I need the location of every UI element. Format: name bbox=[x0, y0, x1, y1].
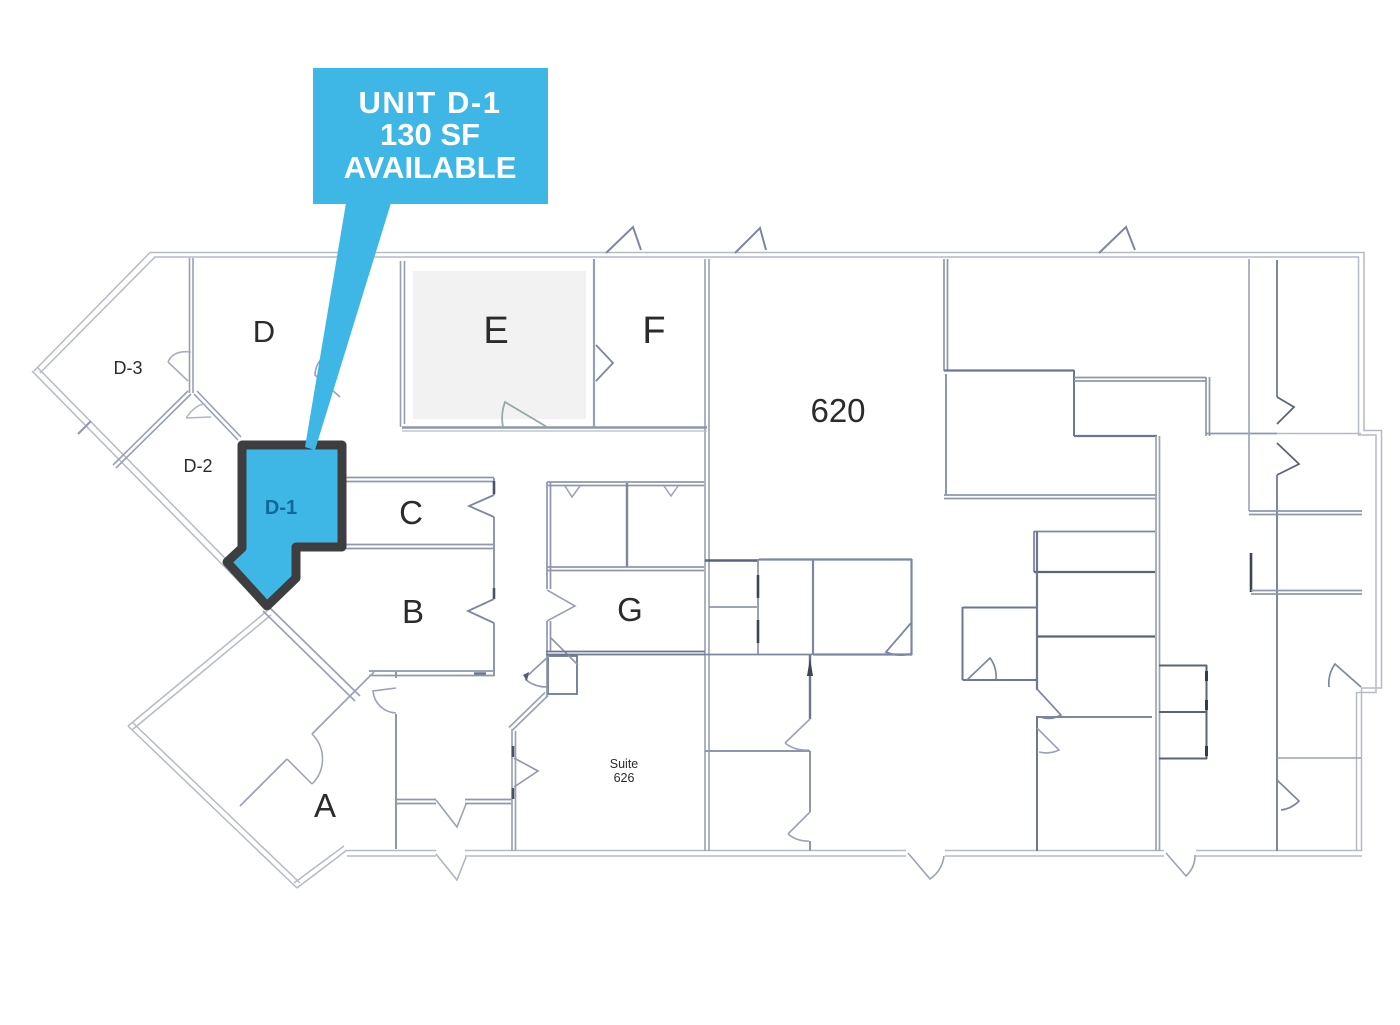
svg-text:D: D bbox=[253, 314, 275, 349]
svg-text:AVAILABLE: AVAILABLE bbox=[344, 150, 517, 185]
svg-text:620: 620 bbox=[810, 392, 865, 429]
svg-text:UNIT D-1: UNIT D-1 bbox=[359, 85, 502, 120]
svg-text:F: F bbox=[642, 310, 665, 352]
svg-text:626: 626 bbox=[614, 771, 635, 785]
svg-text:Suite: Suite bbox=[610, 757, 639, 771]
svg-text:D-3: D-3 bbox=[113, 358, 142, 378]
svg-text:C: C bbox=[399, 494, 423, 531]
svg-text:130 SF: 130 SF bbox=[380, 117, 480, 152]
svg-text:D-2: D-2 bbox=[183, 456, 212, 476]
svg-text:E: E bbox=[483, 310, 508, 352]
svg-text:A: A bbox=[314, 787, 336, 824]
svg-text:D-1: D-1 bbox=[265, 497, 297, 519]
svg-text:B: B bbox=[402, 593, 424, 630]
svg-text:G: G bbox=[617, 591, 643, 628]
